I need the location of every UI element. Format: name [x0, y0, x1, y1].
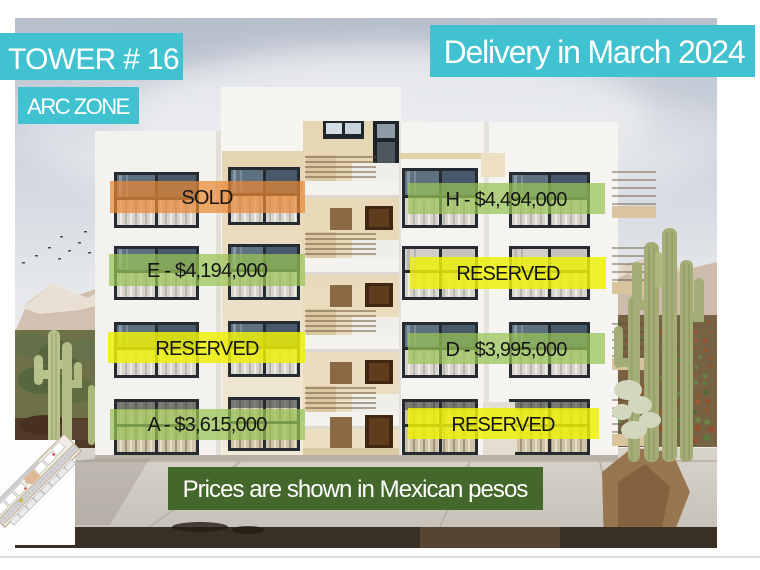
svg-text:RESERVED: RESERVED	[451, 414, 555, 436]
svg-text:RESERVED: RESERVED	[456, 263, 560, 285]
svg-text:D - $3,995,000: D - $3,995,000	[445, 339, 567, 361]
svg-text:E - $4,194,000: E - $4,194,000	[147, 260, 268, 282]
svg-text:Delivery in March 2024: Delivery in March 2024	[444, 34, 745, 70]
svg-text:TOWER # 16: TOWER # 16	[8, 43, 179, 76]
svg-text:Prices are shown in Mexican pe: Prices are shown in Mexican pesos	[183, 476, 529, 503]
svg-text:SOLD: SOLD	[181, 187, 233, 209]
svg-text:H - $4,494,000: H - $4,494,000	[445, 189, 567, 211]
svg-text:RESERVED: RESERVED	[155, 338, 259, 360]
svg-text:A - $3,615,000: A - $3,615,000	[148, 414, 268, 436]
svg-text:ARC ZONE: ARC ZONE	[27, 94, 130, 119]
